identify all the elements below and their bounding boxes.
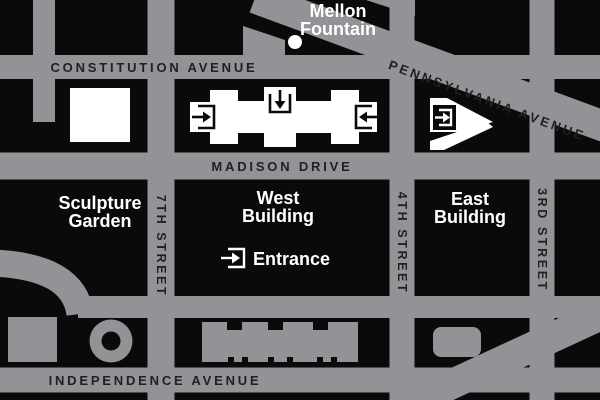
sculpture-garden-label-line2: Garden — [68, 211, 131, 231]
roof-notch — [227, 322, 242, 330]
square-building-footprint — [8, 317, 57, 362]
mellon-fountain-label-line1: Mellon — [310, 1, 367, 21]
madison-drive-label: MADISON DRIVE — [211, 159, 352, 174]
east-building-label-line2: Building — [434, 207, 506, 227]
white-square-building — [70, 88, 130, 142]
capitol-reflecting-pool — [433, 327, 481, 357]
mellon-fountain-label-line2: Fountain — [300, 19, 376, 39]
column-notch — [228, 357, 234, 362]
west-right-bar — [296, 101, 331, 133]
column-notch — [317, 357, 323, 362]
roof-notch — [268, 322, 283, 330]
independence-avenue-label: INDEPENDENCE AVENUE — [49, 373, 262, 388]
sculpture-garden-label-line1: Sculpture — [58, 193, 141, 213]
column-notch — [287, 357, 293, 362]
fourth-street-label: 4TH STREET — [395, 192, 409, 294]
east-entrance-icon — [433, 105, 456, 130]
nga-location-map: Mellon Fountain CONSTITUTION AVENUE PENN… — [0, 0, 600, 400]
west-left-bar — [238, 101, 264, 133]
west-building-footprint — [190, 87, 377, 147]
constitution-avenue-label: CONSTITUTION AVENUE — [50, 60, 257, 75]
entrance-label: Entrance — [253, 249, 330, 269]
column-notch — [242, 357, 248, 362]
columned-building-footprint — [202, 322, 358, 362]
east-building-label-line1: East — [451, 189, 489, 209]
west-building-label-line1: West — [257, 188, 300, 208]
hirshhorn-courtyard-hole — [102, 332, 121, 351]
column-notch — [331, 357, 337, 362]
seventh-street-label: 7TH STREET — [154, 195, 168, 297]
west-building-label-line2: Building — [242, 206, 314, 226]
map-canvas: Mellon Fountain CONSTITUTION AVENUE PENN… — [0, 0, 600, 400]
third-street-label: 3RD STREET — [535, 188, 549, 292]
column-notch — [268, 357, 274, 362]
roof-notch — [313, 322, 328, 330]
